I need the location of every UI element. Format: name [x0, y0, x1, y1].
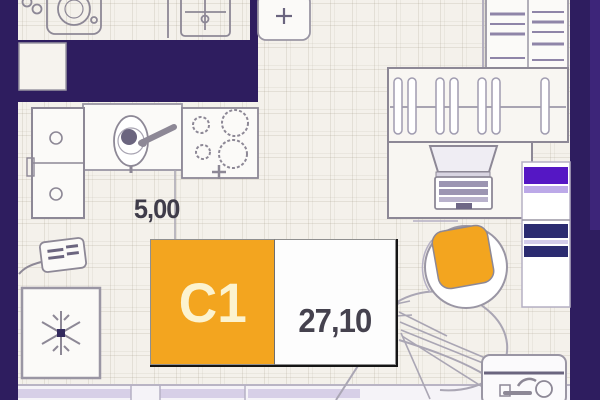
hanger-icon	[541, 78, 549, 134]
wardrobe-icon	[388, 68, 568, 142]
armchair-icon	[422, 224, 507, 308]
unit-code-cell[interactable]: C1	[150, 239, 274, 365]
hanger-icon	[408, 78, 416, 134]
faucet-knobs-icon	[23, 0, 42, 14]
ac-unit-icon	[258, 0, 310, 40]
floorplan: 5,00 C1 27,10	[0, 0, 600, 400]
hanger-icon	[394, 78, 402, 134]
unit-area: 27,10	[299, 302, 372, 340]
unit-code: C1	[178, 270, 246, 335]
laptop-icon	[430, 146, 497, 209]
shaft-niche	[19, 43, 66, 90]
electric-panel-icon	[19, 237, 87, 274]
kitchen-cabinet-icon	[27, 108, 84, 218]
hanger-icon	[436, 78, 444, 134]
vanity-icon	[482, 355, 566, 400]
seat-cushion	[430, 224, 495, 291]
hanger-icon	[478, 78, 486, 134]
fridge-icon	[22, 288, 100, 378]
hanger-icon	[450, 78, 458, 134]
wall-stub	[250, 0, 258, 102]
hanger-icon	[492, 78, 500, 134]
wall-left	[0, 0, 18, 400]
unit-label[interactable]: C1 27,10	[150, 239, 398, 367]
stove-icon	[182, 108, 258, 179]
right-storage-icon	[522, 162, 570, 307]
shelf-cabinet-icon	[486, 0, 568, 72]
dimension-label: 5,00	[120, 194, 193, 225]
wall-right-highlight	[590, 0, 600, 230]
washing-machine-icon	[47, 0, 101, 34]
unit-area-cell: 27,10	[274, 239, 396, 365]
bathroom-sink-icon	[181, 0, 230, 36]
